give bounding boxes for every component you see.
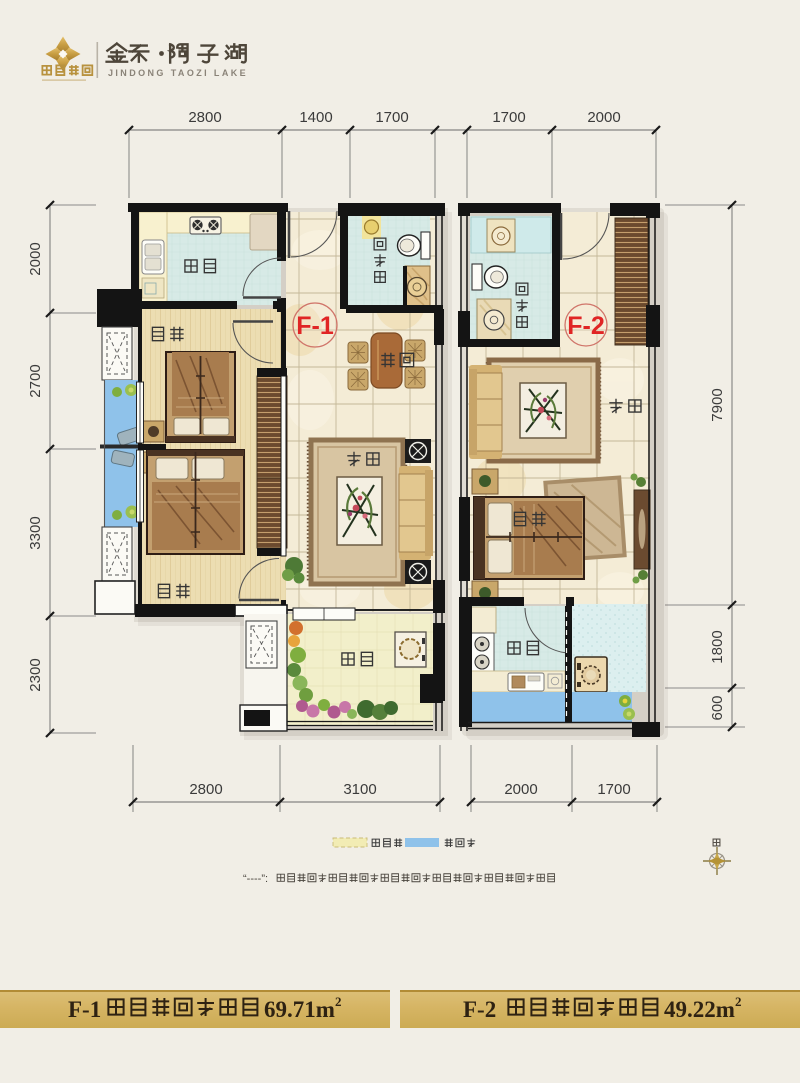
svg-text:1400: 1400 bbox=[299, 109, 332, 126]
svg-text:2: 2 bbox=[735, 994, 742, 1009]
svg-text:JINDONG TAOZI LAKE: JINDONG TAOZI LAKE bbox=[108, 68, 248, 78]
svg-text:2800: 2800 bbox=[189, 781, 222, 798]
svg-text:1800: 1800 bbox=[709, 630, 726, 663]
svg-text:2700: 2700 bbox=[27, 364, 44, 397]
svg-text:F-1: F-1 bbox=[296, 312, 334, 340]
svg-text:600: 600 bbox=[709, 695, 726, 720]
svg-text:F-1: F-1 bbox=[68, 997, 101, 1022]
svg-text:1700: 1700 bbox=[597, 781, 630, 798]
svg-text:7900: 7900 bbox=[709, 388, 726, 421]
svg-text:“----”:: “----”: bbox=[243, 873, 268, 885]
svg-text:49.22m: 49.22m bbox=[664, 997, 735, 1022]
svg-text:2300: 2300 bbox=[27, 658, 44, 691]
svg-text:3100: 3100 bbox=[343, 781, 376, 798]
svg-text:F-2: F-2 bbox=[567, 312, 605, 340]
svg-text:69.71m: 69.71m bbox=[264, 997, 335, 1022]
svg-text:3300: 3300 bbox=[27, 516, 44, 549]
svg-text:1700: 1700 bbox=[375, 109, 408, 126]
svg-text:2000: 2000 bbox=[587, 109, 620, 126]
svg-text:1700: 1700 bbox=[492, 109, 525, 126]
svg-text:2800: 2800 bbox=[188, 109, 221, 126]
svg-text:2000: 2000 bbox=[504, 781, 537, 798]
svg-text:F-2: F-2 bbox=[463, 997, 496, 1022]
svg-text:2000: 2000 bbox=[27, 242, 44, 275]
svg-text:2: 2 bbox=[335, 994, 342, 1009]
